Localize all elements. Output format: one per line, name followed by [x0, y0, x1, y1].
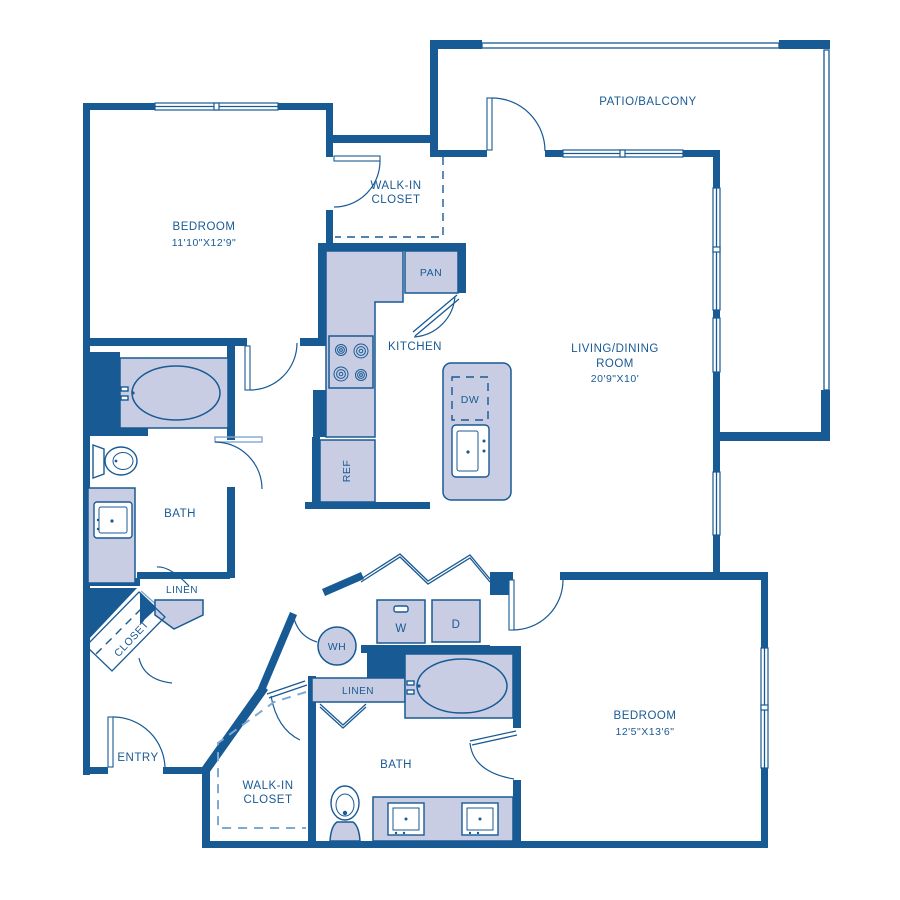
patio-door	[487, 98, 545, 151]
pantry-door	[413, 295, 459, 337]
walk-in-closet1-label-line1: WALK-IN	[371, 180, 422, 192]
linen2-shelf: LINEN	[312, 678, 405, 702]
walk-in-closet2-door	[267, 681, 307, 740]
living-right-window-3	[713, 472, 720, 535]
bedroom2-door	[509, 580, 563, 630]
closet1-label: CLOSET	[112, 618, 152, 659]
bedroom2-window	[761, 648, 768, 768]
floor-plan-canvas: REF PAN DW	[0, 0, 900, 900]
bath1-label: BATH	[164, 508, 196, 520]
bath1-tub	[120, 358, 228, 428]
closet1-door	[139, 658, 172, 683]
bath1-vanity	[88, 488, 135, 583]
living-right-window-2	[713, 318, 720, 372]
dryer-label: D	[452, 619, 461, 631]
floor-plan-svg: REF PAN DW	[0, 0, 900, 900]
bath2-tub	[405, 654, 513, 718]
refrigerator: REF	[320, 440, 375, 502]
washer: W	[377, 600, 425, 643]
bedroom1-door	[245, 343, 297, 390]
bath1-door	[215, 437, 262, 489]
refrigerator-label: REF	[341, 460, 353, 483]
living-dining-label-line1: LIVING/DINING	[571, 343, 659, 355]
washer-label: W	[395, 623, 406, 635]
kitchen-island: DW	[443, 363, 511, 500]
living-dining-label-line2: ROOM	[596, 358, 634, 370]
pantry: PAN	[405, 251, 458, 293]
laundry-bifold-doors	[361, 554, 490, 584]
linen2-label: LINEN	[342, 686, 374, 697]
linen2-bifold-doors	[320, 704, 366, 728]
living-patio-window	[563, 150, 683, 157]
water-heater-nook-door	[293, 614, 317, 642]
bath2-label: BATH	[380, 759, 412, 771]
water-heater: WH	[318, 627, 356, 665]
bath1-toilet	[93, 445, 137, 478]
walk-in-closet2-label-line2: CLOSET	[243, 794, 292, 806]
bath2-toilet	[330, 786, 360, 841]
water-heater-label: WH	[328, 641, 347, 653]
linen1-label: LINEN	[166, 585, 198, 596]
living-dining-dimensions: 20'9"X10'	[591, 373, 639, 385]
bath2-door	[470, 731, 517, 779]
kitchen-label: KITCHEN	[388, 341, 442, 353]
living-right-window-1	[713, 188, 720, 310]
entry-label: ENTRY	[117, 752, 158, 764]
dryer: D	[432, 600, 480, 642]
bath2-vanity	[373, 797, 513, 841]
bedroom1-label: BEDROOM	[173, 221, 236, 233]
walk-in-closet2-label-line1: WALK-IN	[243, 780, 294, 792]
patio-balcony-label: PATIO/BALCONY	[599, 96, 696, 108]
walk-in-closet1-label-line2: CLOSET	[371, 194, 420, 206]
bedroom1-window	[155, 103, 278, 110]
bedroom1-dimensions: 11'10"X12'9"	[172, 237, 237, 249]
stove-cooktop	[329, 336, 373, 388]
island-sink	[452, 425, 489, 477]
walk-in-closet2-rod-dashes	[218, 692, 306, 828]
dishwasher-label: DW	[461, 394, 480, 406]
pantry-label: PAN	[420, 267, 442, 279]
bedroom2-dimensions: 12'5"X13'6"	[615, 726, 674, 738]
bedroom2-label: BEDROOM	[614, 710, 677, 722]
